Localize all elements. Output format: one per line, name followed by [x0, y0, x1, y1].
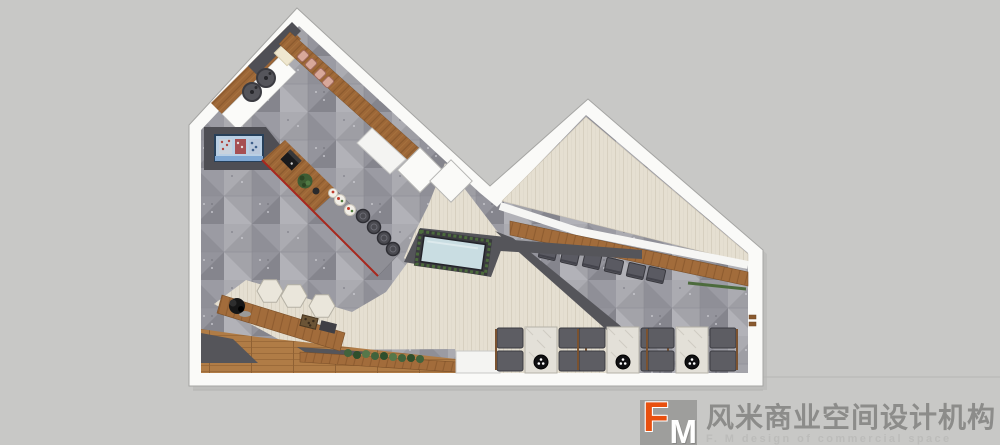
cooktop [257, 69, 275, 87]
food-plate [329, 189, 338, 198]
logo-letter-m: M [669, 415, 697, 445]
bar-plant [298, 174, 313, 189]
company-logo: F M 风米商业空间设计机构 F. M design of commercial… [640, 393, 996, 445]
bar-stool [368, 221, 381, 234]
floor-cabinet [456, 351, 500, 373]
food-plate [345, 205, 356, 216]
bar-stool [378, 232, 391, 245]
dining-area [496, 327, 737, 373]
company-name-english: F. M design of commercial space [706, 433, 996, 445]
company-name-chinese: 风米商业空间设计机构 [706, 403, 996, 432]
bar-stool [387, 243, 400, 256]
fm-logo-mark: F M [640, 400, 697, 445]
bar-pot [313, 188, 320, 195]
floor-plan [0, 0, 1000, 445]
logo-text: 风米商业空间设计机构 F. M design of commercial spa… [706, 403, 996, 445]
cooktop [243, 83, 261, 101]
screenshot-canvas: F M 风米商业空间设计机构 F. M design of commercial… [0, 0, 1000, 445]
bar-stool [357, 210, 370, 223]
logo-letter-f: F [643, 396, 669, 438]
